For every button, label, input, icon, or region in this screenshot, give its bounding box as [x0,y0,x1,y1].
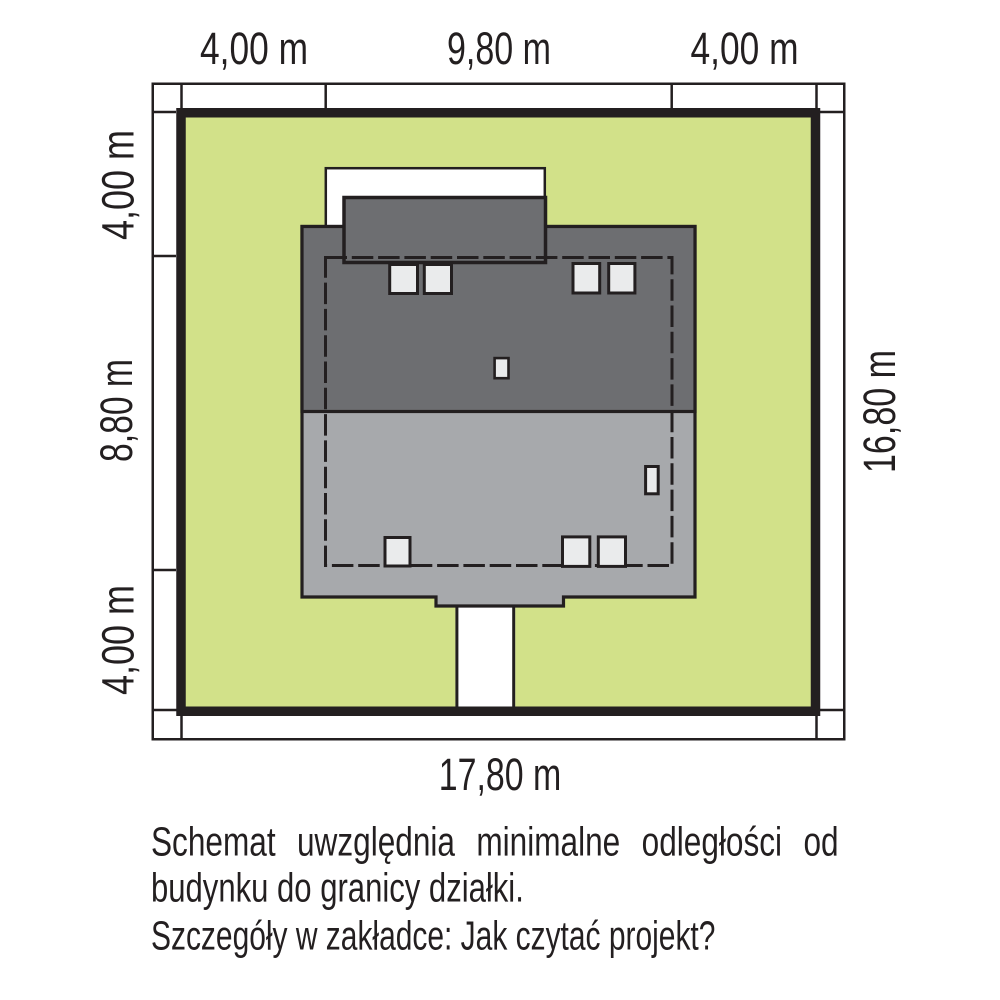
svg-text:8,80 m: 8,80 m [91,359,142,462]
svg-text:4,00 m: 4,00 m [93,130,144,240]
svg-text:16,80 m: 16,80 m [854,350,905,473]
svg-text:9,80 m: 9,80 m [447,23,551,74]
svg-text:Szczegóły w zakładce: Jak czy: Szczegóły w zakładce: Jak czytać projekt… [151,913,715,958]
svg-text:4,00 m: 4,00 m [93,585,144,695]
svg-text:17,80 m: 17,80 m [439,749,562,800]
svg-text:4,00 m: 4,00 m [691,23,799,74]
svg-text:Schemat uwzględnia minimalne o: Schemat uwzględnia minimalne odległości … [151,819,839,865]
svg-text:budynku do granicy działki.: budynku do granicy działki. [151,864,524,910]
svg-text:4,00 m: 4,00 m [200,23,308,74]
